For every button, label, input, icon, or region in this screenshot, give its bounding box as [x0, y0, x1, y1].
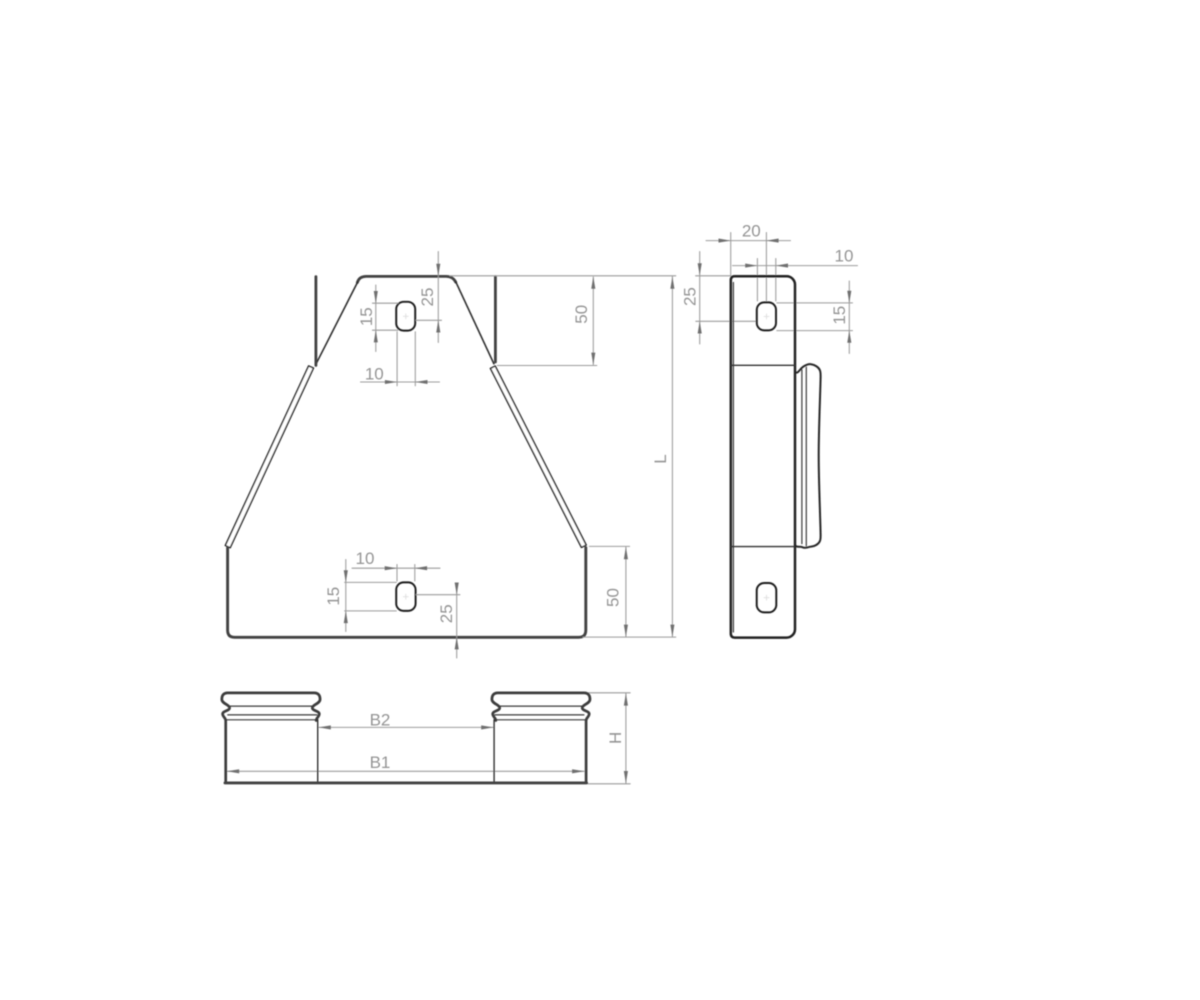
svg-text:25: 25 — [437, 604, 456, 623]
svg-text:50: 50 — [603, 588, 622, 607]
svg-text:L: L — [651, 454, 670, 463]
svg-text:10: 10 — [356, 549, 375, 568]
svg-text:15: 15 — [324, 587, 343, 606]
svg-text:50: 50 — [572, 305, 591, 324]
svg-text:10: 10 — [835, 247, 854, 266]
svg-text:10: 10 — [365, 364, 384, 383]
svg-text:15: 15 — [357, 307, 376, 326]
svg-text:25: 25 — [680, 287, 699, 306]
svg-text:20: 20 — [742, 222, 761, 241]
svg-text:H: H — [606, 732, 625, 744]
svg-text:B2: B2 — [370, 710, 391, 729]
svg-text:15: 15 — [830, 306, 849, 325]
svg-text:B1: B1 — [370, 753, 391, 772]
svg-text:25: 25 — [418, 288, 437, 307]
